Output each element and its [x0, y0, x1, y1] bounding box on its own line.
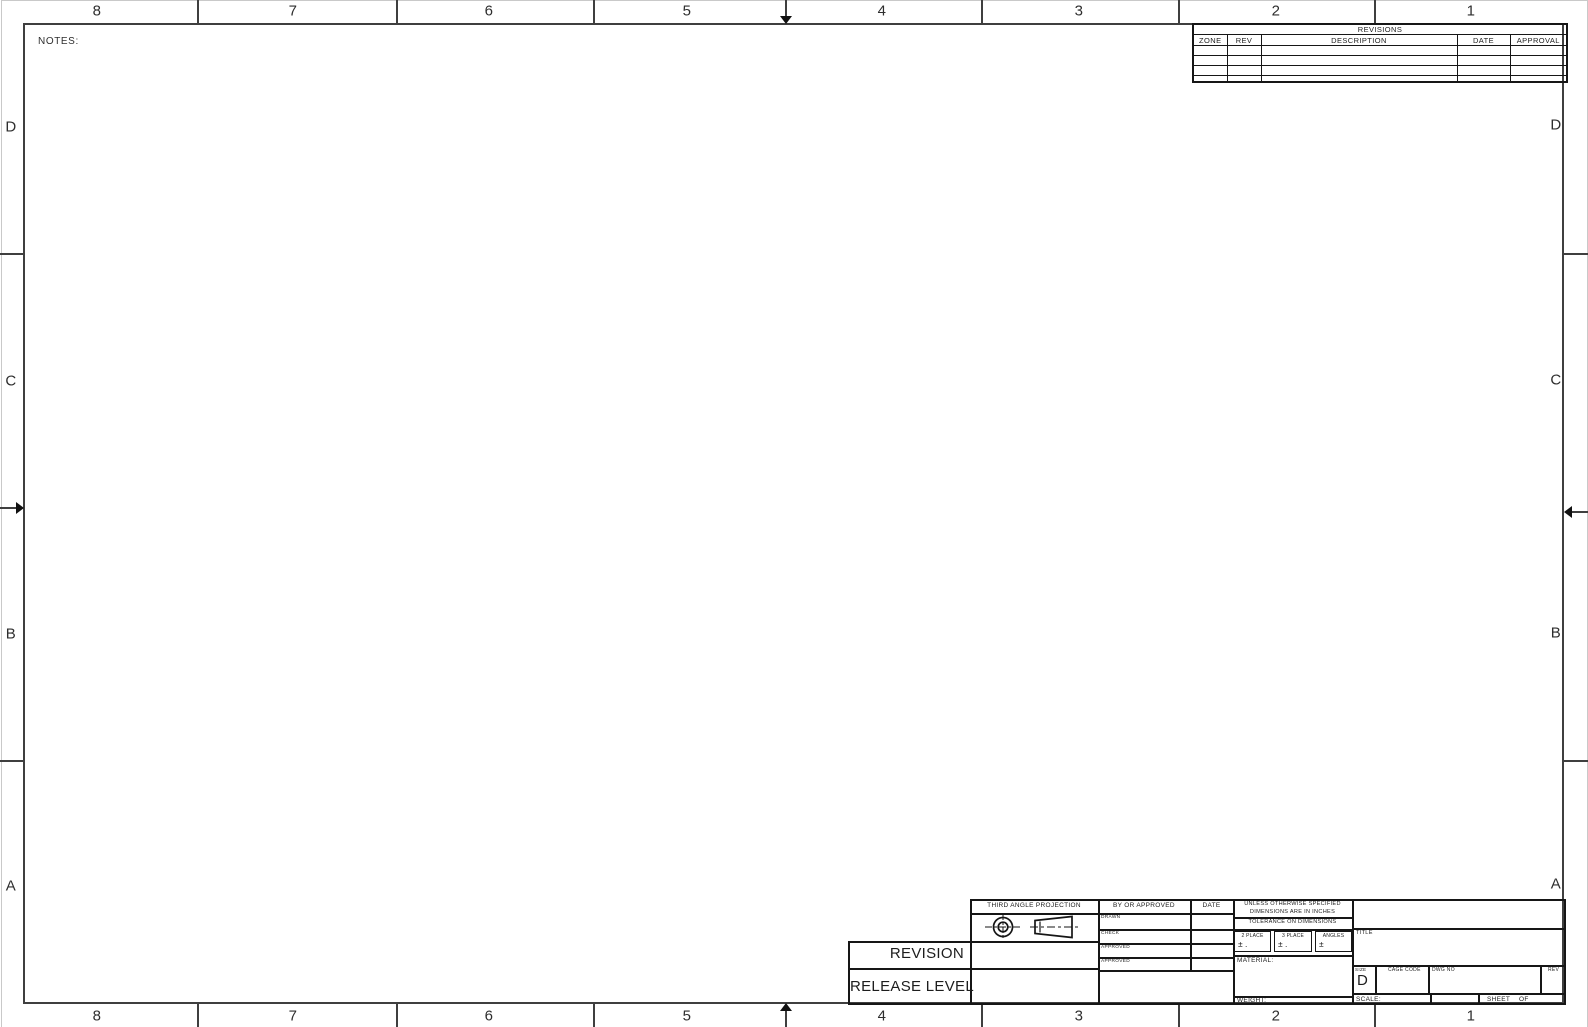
revision-cell[interactable] — [1457, 56, 1510, 66]
revision-cell[interactable] — [1261, 66, 1457, 76]
by-or-approved-label: BY OR APPROVED — [1098, 902, 1190, 909]
revisions-col-zone: ZONE — [1193, 35, 1227, 46]
zone-tick — [981, 0, 983, 23]
revision-cell[interactable] — [1193, 56, 1227, 66]
zone-col-top-4: 4 — [878, 3, 887, 20]
notes-label: NOTES: — [38, 36, 79, 47]
drawing-area[interactable] — [25, 25, 1562, 885]
tolerance-angles-value: ± — [1319, 939, 1351, 949]
zone-tick — [197, 1004, 199, 1027]
approved-value-cell[interactable] — [1100, 945, 1188, 955]
zone-row-left-b: B — [6, 626, 17, 643]
tolerance-angles-box: ANGLES ± — [1315, 931, 1352, 952]
date-column-label: DATE — [1190, 902, 1233, 909]
revision-cell[interactable] — [1227, 66, 1261, 76]
revisions-col-rev: REV — [1227, 35, 1261, 46]
release-level-value-cell[interactable] — [972, 970, 1096, 1001]
grid-line — [848, 1003, 1566, 1005]
unless-otherwise-specified-label: UNLESS OTHERWISE SPECIFIED — [1233, 901, 1352, 907]
grid-line — [1564, 899, 1566, 1005]
zone-col-top-6: 6 — [485, 3, 494, 20]
revision-cell[interactable] — [1457, 46, 1510, 56]
zone-col-top-5: 5 — [683, 3, 692, 20]
center-mark-arrowhead-left-icon — [16, 502, 24, 514]
zone-col-top-7: 7 — [289, 3, 298, 20]
center-mark-arrow-bottom — [785, 1011, 787, 1027]
center-mark-arrow-left — [0, 507, 17, 509]
title-value-cell[interactable] — [1354, 937, 1564, 963]
revision-cell[interactable] — [1227, 76, 1261, 82]
revision-cell[interactable] — [1457, 66, 1510, 76]
sheet-total-cell[interactable] — [1530, 994, 1562, 1003]
zone-tick — [1564, 253, 1588, 255]
grid-line — [848, 941, 850, 1005]
revision-cell[interactable] — [1227, 46, 1261, 56]
zone-col-bottom-3: 3 — [1075, 1008, 1084, 1025]
grid-line — [1478, 993, 1480, 1005]
sheet-of-label: OF — [1519, 996, 1529, 1003]
zone-col-top-1: 1 — [1467, 3, 1476, 20]
zone-col-bottom-6: 6 — [485, 1008, 494, 1025]
zone-col-bottom-1: 1 — [1467, 1008, 1476, 1025]
zone-row-left-d: D — [5, 119, 16, 136]
zone-tick — [1178, 0, 1180, 23]
revision-cell[interactable] — [1261, 46, 1457, 56]
zone-row-right-b: B — [1551, 625, 1562, 642]
tolerance-2place-box: 2 PLACE ± . — [1234, 931, 1271, 952]
zone-tick — [1374, 0, 1376, 23]
revision-cell[interactable] — [1193, 76, 1227, 82]
zone-row-right-c: C — [1550, 372, 1561, 389]
zone-col-bottom-7: 7 — [289, 1008, 298, 1025]
scale-value-cell[interactable] — [1378, 994, 1428, 1003]
zone-tick — [1564, 760, 1588, 762]
center-mark-arrowhead-bottom-icon — [780, 1003, 792, 1011]
zone-row-left-c: C — [5, 373, 16, 390]
tolerance-3place-value: ± . — [1278, 939, 1311, 949]
revisions-table: REVISIONS ZONE REV DESCRIPTION DATE APPR… — [1192, 23, 1568, 83]
cage-code-value-cell[interactable] — [1377, 973, 1426, 991]
tolerance-2place-value: ± . — [1238, 939, 1270, 949]
revision-cell[interactable] — [1510, 76, 1567, 82]
zone-tick — [0, 760, 23, 762]
grid-line — [1190, 899, 1192, 970]
revision-value-cell[interactable] — [972, 943, 1096, 966]
center-mark-arrow-right — [1571, 511, 1588, 513]
revision-cell[interactable] — [1193, 66, 1227, 76]
revision-field-label: REVISION — [852, 945, 964, 962]
center-mark-arrowhead-right-icon — [1564, 506, 1572, 518]
revisions-title: REVISIONS — [1193, 24, 1567, 35]
title-label: TITLE — [1356, 930, 1373, 936]
size-value: D — [1357, 972, 1368, 989]
material-label: MATERIAL: — [1237, 957, 1274, 964]
grid-line — [1233, 899, 1235, 1005]
zone-col-top-2: 2 — [1272, 3, 1281, 20]
revision-cell[interactable] — [1261, 56, 1457, 66]
tolerance-on-dimensions-label: TOLERANCE ON DIMENSIONS — [1233, 919, 1352, 925]
zone-tick — [1374, 1004, 1376, 1027]
release-level-field-label: RELEASE LEVEL — [850, 978, 964, 995]
revision-cell[interactable] — [1457, 76, 1510, 82]
dimensions-in-inches-label: DIMENSIONS ARE IN INCHES — [1233, 909, 1352, 915]
zone-row-right-a: A — [1551, 876, 1562, 893]
zone-col-top-8: 8 — [93, 3, 102, 20]
zone-tick — [1178, 1004, 1180, 1027]
zone-tick — [396, 1004, 398, 1027]
material-value-cell[interactable] — [1236, 966, 1350, 994]
zone-tick — [396, 0, 398, 23]
zone-tick — [0, 253, 23, 255]
weight-label: WEIGHT: — [1237, 997, 1266, 1004]
zone-tick — [981, 1004, 983, 1027]
revision-cell[interactable] — [1261, 76, 1457, 82]
revisions-col-date: DATE — [1457, 35, 1510, 46]
grid-line — [1430, 993, 1432, 1005]
revision-cell[interactable] — [1510, 56, 1567, 66]
company-name-cell[interactable] — [1354, 901, 1564, 927]
rev-value-cell[interactable] — [1542, 973, 1562, 991]
zone-tick — [593, 1004, 595, 1027]
zone-col-bottom-2: 2 — [1272, 1008, 1281, 1025]
tolerance-3place-box: 3 PLACE ± . — [1274, 931, 1312, 952]
sheet-number-cell[interactable] — [1505, 994, 1517, 1003]
revisions-col-description: DESCRIPTION — [1261, 35, 1457, 46]
zone-tick — [593, 0, 595, 23]
zone-col-bottom-8: 8 — [93, 1008, 102, 1025]
revisions-col-approval: APPROVAL — [1510, 35, 1567, 46]
zone-row-left-a: A — [6, 878, 17, 895]
grid-line — [1352, 928, 1566, 930]
zone-row-right-d: D — [1550, 117, 1561, 134]
check-value-cell[interactable] — [1100, 931, 1188, 941]
center-mark-arrowhead-top-icon — [780, 16, 792, 24]
zone-col-bottom-5: 5 — [683, 1008, 692, 1025]
zone-col-top-3: 3 — [1075, 3, 1084, 20]
drawn-value-cell[interactable] — [1100, 915, 1188, 927]
approved-value-cell[interactable] — [1100, 959, 1188, 968]
revision-cell[interactable] — [1193, 46, 1227, 56]
revision-cell[interactable] — [1510, 46, 1567, 56]
revision-cell[interactable] — [1510, 66, 1567, 76]
revision-cell[interactable] — [1227, 56, 1261, 66]
grid-line — [1098, 970, 1233, 972]
grid-line — [1352, 965, 1566, 967]
zone-tick — [197, 0, 199, 23]
dwg-no-value-cell[interactable] — [1430, 973, 1538, 991]
third-angle-projection-label: THIRD ANGLE PROJECTION — [970, 902, 1098, 909]
zone-col-bottom-4: 4 — [878, 1008, 887, 1025]
third-angle-projection-symbol-icon — [980, 914, 1088, 940]
center-mark-arrow-top — [785, 0, 787, 17]
drawing-sheet: NOTES: 8 7 6 5 4 3 2 1 8 7 6 5 4 3 2 1 D… — [0, 0, 1588, 1027]
